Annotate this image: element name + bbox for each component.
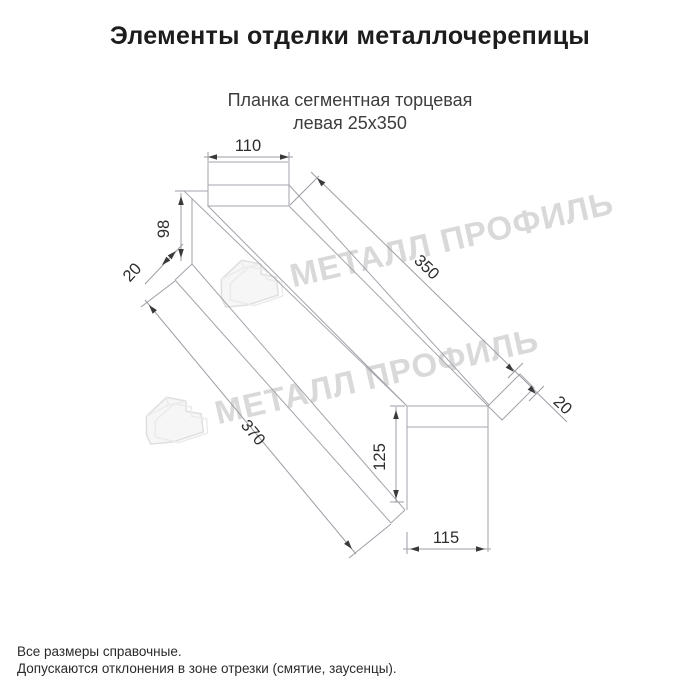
dim-label-end-height: 125 [371,443,389,471]
top-end-face [175,162,289,280]
dimension-115: 115 [403,529,491,554]
dimension-98: 98 [155,191,184,261]
watermark-2: МЕТАЛЛ ПРОФИЛЬ [139,313,542,449]
metall-profil-logo-icon [214,253,285,313]
metall-profil-logo-icon [139,390,210,450]
dimension-20-right: 20 [508,363,575,418]
watermark-1: МЕТАЛЛ ПРОФИЛЬ [214,176,617,312]
footer-note-1: Все размеры справочные. [17,643,397,660]
page: Элементы отделки металлочерепицы Планка … [0,0,700,700]
dimension-125: 125 [371,406,405,502]
dimension-20-left: 20 [120,244,183,285]
dim-label-top-width: 110 [235,137,261,155]
dim-label-left-height: 98 [155,220,173,238]
footer-note-2: Допускаются отклонения в зоне отрезки (с… [17,660,397,677]
footer-notes: Все размеры справочные. Допускаются откл… [17,643,397,677]
right-end-flap [488,374,534,420]
technical-drawing: МЕТАЛЛ ПРОФИЛЬ МЕТАЛЛ ПРОФИЛЬ [0,0,700,700]
dim-label-left-lip: 20 [120,260,146,286]
watermark-text: МЕТАЛЛ ПРОФИЛЬ [286,184,617,295]
dim-label-right-lip: 20 [550,393,576,419]
dimension-110: 110 [204,137,293,161]
dim-label-end-width: 115 [433,529,459,547]
